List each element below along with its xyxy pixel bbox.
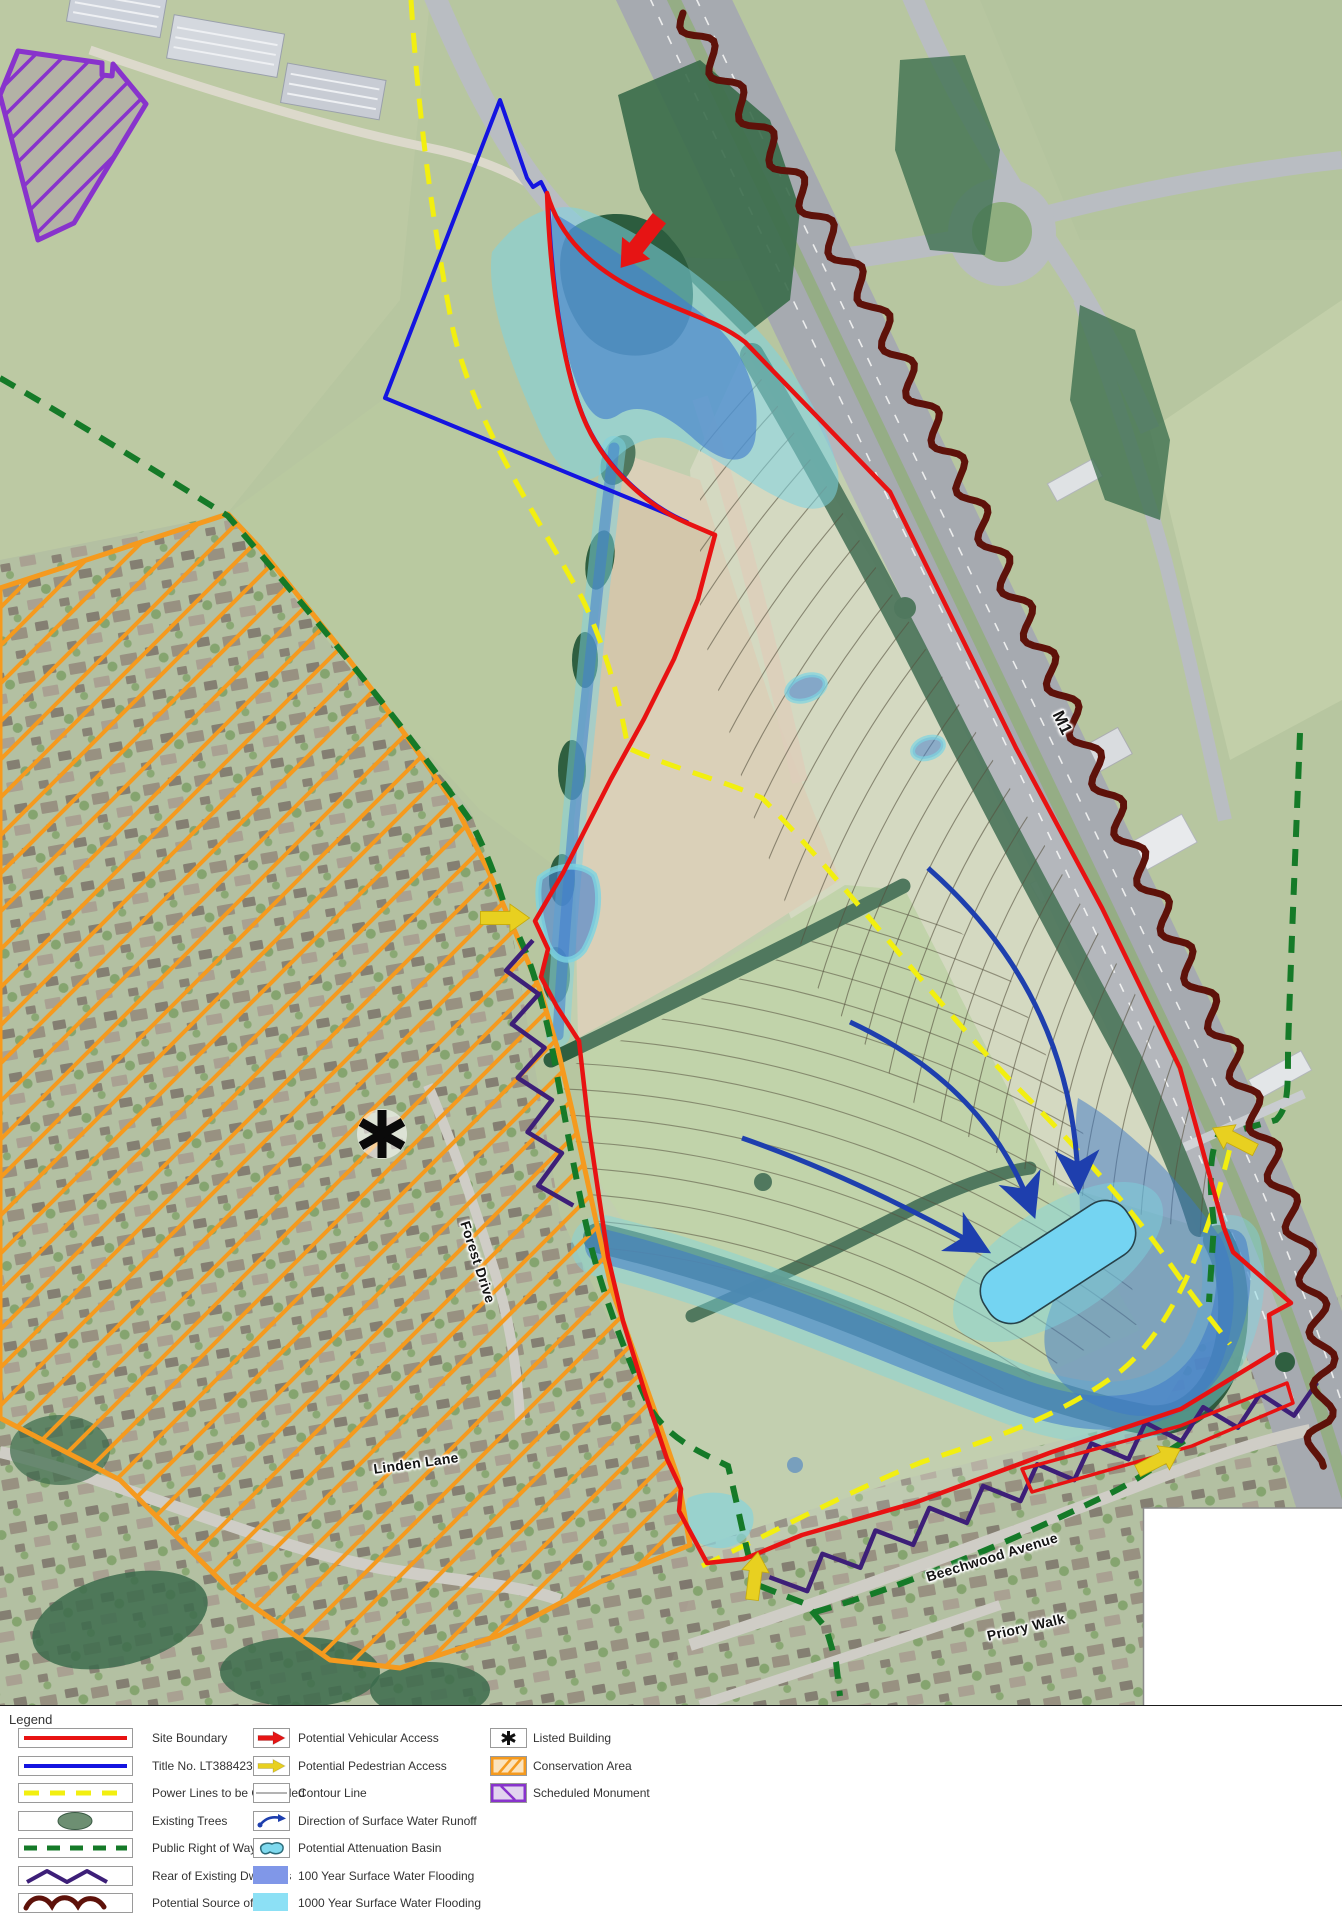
legend-title: Legend [9, 1712, 52, 1727]
legend-symbol-fill-cyan [253, 1893, 290, 1913]
legend-label: Listed Building [533, 1731, 611, 1745]
legend-item-potential-attenuation-basin: Potential Attenuation Basin [0, 1838, 1342, 1858]
legend-label: 100 Year Surface Water Flooding [298, 1869, 474, 1883]
legend-item-flood-100-year: 100 Year Surface Water Flooding [0, 1866, 1342, 1886]
legend-item-direction-of-runoff: Direction of Surface Water Runoff [0, 1811, 1342, 1831]
legend-label: Conservation Area [533, 1759, 632, 1773]
aerial-site-plan-map [0, 0, 1342, 1705]
legend: Legend Site BoundaryTitle No. LT388423Po… [0, 1705, 1342, 1920]
site-plan-page: M1Forest DriveLinden LaneBeechwood Avenu… [0, 0, 1342, 1920]
legend-symbol-hatch-orange [490, 1756, 527, 1776]
map-cutout [1144, 1508, 1342, 1705]
legend-label: Potential Attenuation Basin [298, 1841, 441, 1855]
legend-symbol-runoff [253, 1811, 290, 1831]
legend-item-scheduled-monument: Scheduled Monument [0, 1783, 1342, 1803]
legend-item-flood-1000-year: 1000 Year Surface Water Flooding [0, 1893, 1342, 1913]
legend-item-conservation-area: Conservation Area [0, 1756, 1342, 1776]
legend-item-listed-building: Listed Building [0, 1728, 1342, 1748]
legend-label: Scheduled Monument [533, 1786, 650, 1800]
legend-symbol-hatch-purple [490, 1783, 527, 1803]
listed-building-asterisk [357, 1109, 407, 1159]
legend-label: Direction of Surface Water Runoff [298, 1814, 477, 1828]
legend-symbol-asterisk [490, 1728, 527, 1748]
legend-symbol-basin [253, 1838, 290, 1858]
legend-symbol-fill-blue [253, 1866, 290, 1886]
legend-label: 1000 Year Surface Water Flooding [298, 1896, 481, 1910]
